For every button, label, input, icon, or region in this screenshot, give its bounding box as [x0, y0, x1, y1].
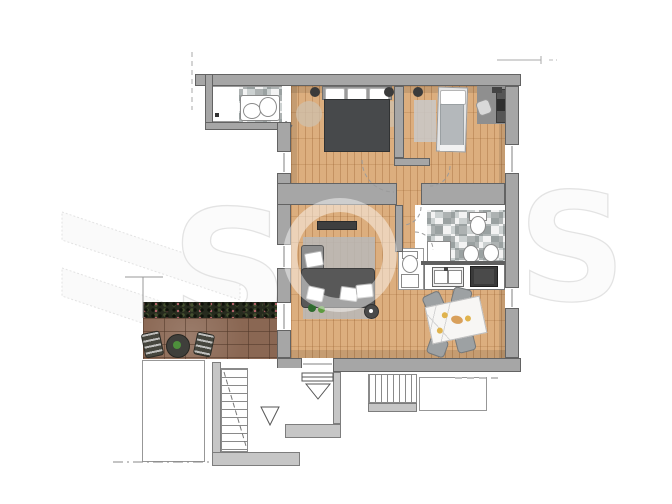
wall-hall-south-east [421, 183, 505, 205]
terrace-door [277, 303, 291, 330]
bedside-dot-right [384, 87, 394, 97]
lower-floor-room-right [419, 377, 487, 411]
terrace-hedge [143, 302, 277, 318]
window-east-dining [505, 288, 519, 308]
basin-oval [483, 244, 499, 262]
bath-drain-dot [215, 113, 219, 117]
stair-flight-left [221, 368, 248, 452]
wall-top [195, 74, 521, 86]
wall-east-2 [505, 173, 519, 288]
plate-3 [464, 315, 471, 322]
bedside-dot-left [310, 87, 320, 97]
plant-2 [318, 306, 325, 313]
kids-bed-sheet [440, 145, 464, 151]
shadow-bottom [291, 350, 505, 358]
double-bed-body [324, 99, 390, 152]
sofa-pillow-4 [355, 283, 373, 299]
window-west-hall [277, 152, 291, 173]
stove-inner [474, 269, 494, 284]
stair-flight-right [368, 374, 417, 403]
kids-bed-blanket [440, 104, 464, 146]
wall-east-1 [505, 86, 519, 145]
wall-east-3 [505, 308, 519, 358]
kitchen-sink-bowl-2 [448, 270, 462, 284]
kitchen-sink-bowl-1 [434, 270, 448, 284]
wall-shelf [492, 87, 502, 93]
stair-wall-left [212, 362, 221, 466]
plate-1 [441, 312, 448, 319]
wall-bath-kitchen-line [421, 261, 505, 265]
side-table-dot [369, 309, 373, 313]
window-east-kidsroom [505, 145, 519, 173]
terrace-table-plant [173, 341, 181, 349]
stair-landing-right [341, 372, 368, 403]
kitchen-faucet [444, 267, 448, 271]
floor-plan-canvas: S S [0, 0, 672, 504]
bread-basket [450, 315, 463, 325]
plate-2 [436, 327, 443, 334]
kids-bed-pillow [440, 90, 466, 105]
wc-sink [401, 274, 419, 288]
plant-1 [308, 304, 316, 312]
bedside-rug-left [296, 101, 322, 127]
wc-bowl [402, 255, 418, 273]
kids-ceiling-dot [413, 87, 423, 97]
wall-hall-south-west [277, 183, 397, 205]
window-west-living [277, 245, 291, 268]
stair-wall-step [285, 424, 341, 438]
stair-wall-under-right [368, 403, 417, 412]
tv-sideboard [317, 221, 357, 230]
laptop [497, 99, 505, 111]
watermark-letter-right: S [518, 162, 626, 336]
toilet-bowl [470, 216, 486, 235]
watermark-band-1 [62, 212, 240, 300]
stair-wall-bottom [212, 452, 300, 466]
sofa-pillow-1 [304, 251, 324, 269]
stair-wall-mid [333, 372, 341, 424]
bath-basin-2 [259, 97, 277, 117]
wall-smallbath-bottom [205, 122, 283, 130]
kids-rug [414, 100, 436, 142]
wall-west-1 [277, 122, 291, 152]
wall-hall-stub [394, 158, 430, 166]
lower-floor-room-left [142, 360, 205, 462]
wall-west-4 [277, 330, 291, 358]
shadow-left [291, 86, 297, 198]
wall-west-3 [277, 268, 291, 303]
wall-center [395, 205, 403, 252]
stair-landing-lower [248, 368, 285, 452]
wall-bedroom-divider [394, 86, 404, 158]
wall-south-east [333, 358, 521, 372]
